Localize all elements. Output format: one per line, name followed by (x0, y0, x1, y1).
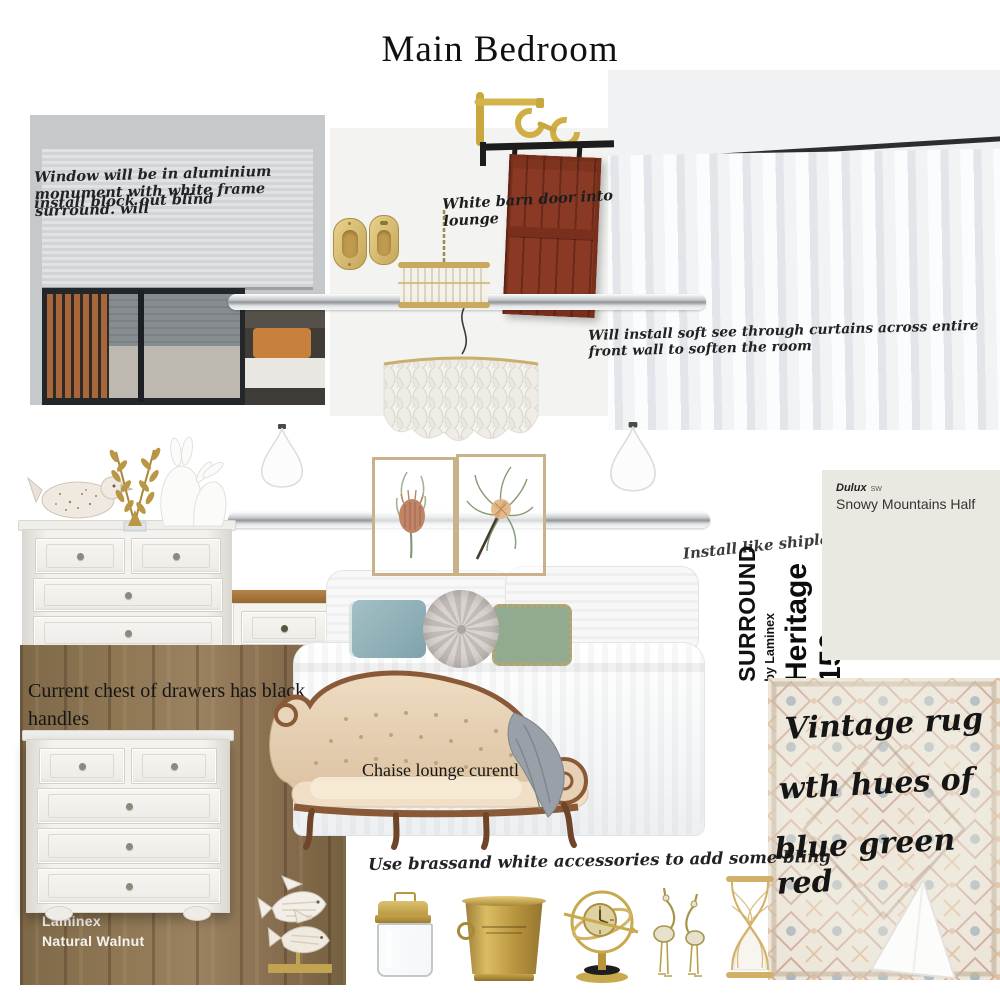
cushion-button (457, 625, 466, 634)
banksia-artwork (375, 460, 447, 567)
flush-pull-right (369, 215, 399, 265)
rabbit-figurines (146, 436, 230, 528)
sheer-curtain-photo (608, 70, 1000, 430)
curtain-pleats (608, 148, 1000, 430)
page-title: Main Bedroom (0, 28, 1000, 71)
fish-sculpture (252, 872, 350, 980)
protea-artwork (459, 457, 537, 567)
bucket-engraving (482, 926, 526, 928)
bedhead-in-photo (245, 310, 325, 328)
glass-highlight (386, 930, 392, 968)
window-scene-timber-slats (47, 294, 109, 398)
bucket-engraving (486, 932, 522, 934)
white-duvet-in-photo (245, 358, 325, 388)
canister-glass-body (377, 923, 433, 977)
barn-door-rail-endcap (480, 142, 486, 166)
rug-annotation-line3: blue green red (774, 820, 1000, 902)
gold-wire-hourglass (720, 874, 780, 980)
flush-pull-recess (377, 230, 391, 256)
chest-annotation-line2: handles (28, 708, 89, 731)
bucket-ring-handle (457, 922, 475, 940)
orange-cushion (253, 328, 311, 358)
chaise-lounge (246, 655, 648, 855)
brass-armillary-globe (560, 880, 644, 984)
window-scene-concrete (109, 346, 240, 398)
pillow-blue-tassel (352, 600, 426, 658)
chaise-annotation: Chaise lounge curentl (362, 760, 519, 781)
botanical-print-1 (372, 457, 456, 576)
flush-pull-recess (342, 230, 358, 258)
canister-lid-flange (375, 915, 431, 923)
pendant-light-left (252, 424, 312, 490)
brass-champagne-bucket (460, 896, 548, 982)
screw (348, 222, 351, 225)
paint-brand: Dulux (836, 482, 867, 494)
pendant-light-right (600, 422, 666, 494)
surround-byline: by Laminex (763, 613, 777, 682)
surround-brand: SURROUND (734, 545, 761, 682)
capiz-chandelier (380, 308, 542, 450)
bed-corner-in-photo (245, 310, 325, 405)
bucket-rim (462, 896, 546, 906)
bucket-base (474, 974, 534, 981)
nightstand-top (230, 590, 336, 603)
flush-pull-left (333, 218, 367, 270)
canister-lid (378, 901, 428, 916)
curtain-wall-top (608, 70, 1000, 161)
paint-swatch: Dulux SW Snowy Mountains Half (822, 470, 1000, 660)
botanical-print-2 (456, 454, 546, 576)
mood-board: Main Bedroom Window will be in aluminium… (0, 0, 1000, 1000)
paint-name: Snowy Mountains Half (836, 496, 975, 512)
window-photo: Window will be in aluminium monument wit… (30, 115, 325, 405)
glass-brass-canister (374, 892, 432, 976)
bucket-body (460, 900, 548, 974)
screw (348, 263, 351, 266)
timber-name: Natural Walnut (42, 933, 144, 949)
privacy-latch (380, 221, 388, 225)
paint-code: SW (871, 486, 882, 493)
surround-label: SURROUND by Laminex (734, 570, 777, 682)
brass-crane-figurines (640, 882, 716, 980)
chest-of-drawers-walnut-bg (26, 739, 230, 913)
window-frame (42, 288, 245, 405)
window-mullion (138, 290, 144, 402)
